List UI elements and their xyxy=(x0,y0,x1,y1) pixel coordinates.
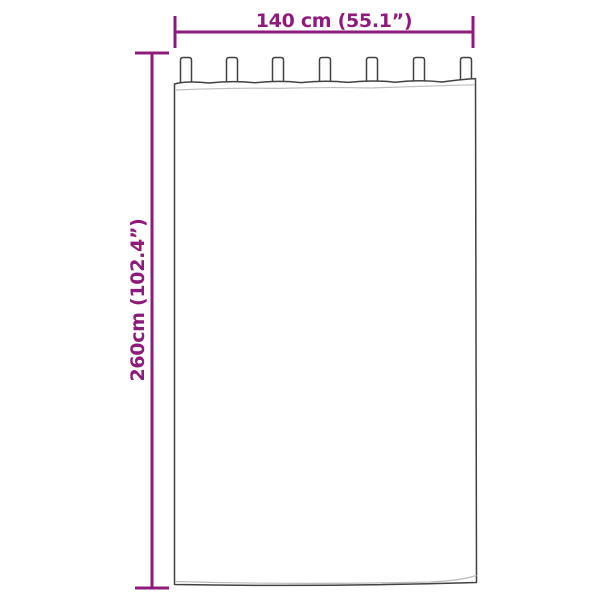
height-dimension-label: 260cm (102.4”) xyxy=(127,218,149,381)
curtain-tab xyxy=(181,58,192,84)
curtain-tab xyxy=(273,58,284,84)
width-dimension-label: 140 cm (55.1”) xyxy=(256,10,412,32)
curtain-body xyxy=(175,79,477,586)
curtain-tab xyxy=(227,58,238,84)
curtain-tab xyxy=(320,58,331,84)
diagram-svg: 140 cm (55.1”) 260cm (102.4”) xyxy=(0,0,600,600)
curtain-tab xyxy=(367,58,378,84)
curtain-tab xyxy=(414,58,425,84)
dimension-diagram: 140 cm (55.1”) 260cm (102.4”) xyxy=(0,0,600,600)
curtain-drawing xyxy=(175,58,477,586)
